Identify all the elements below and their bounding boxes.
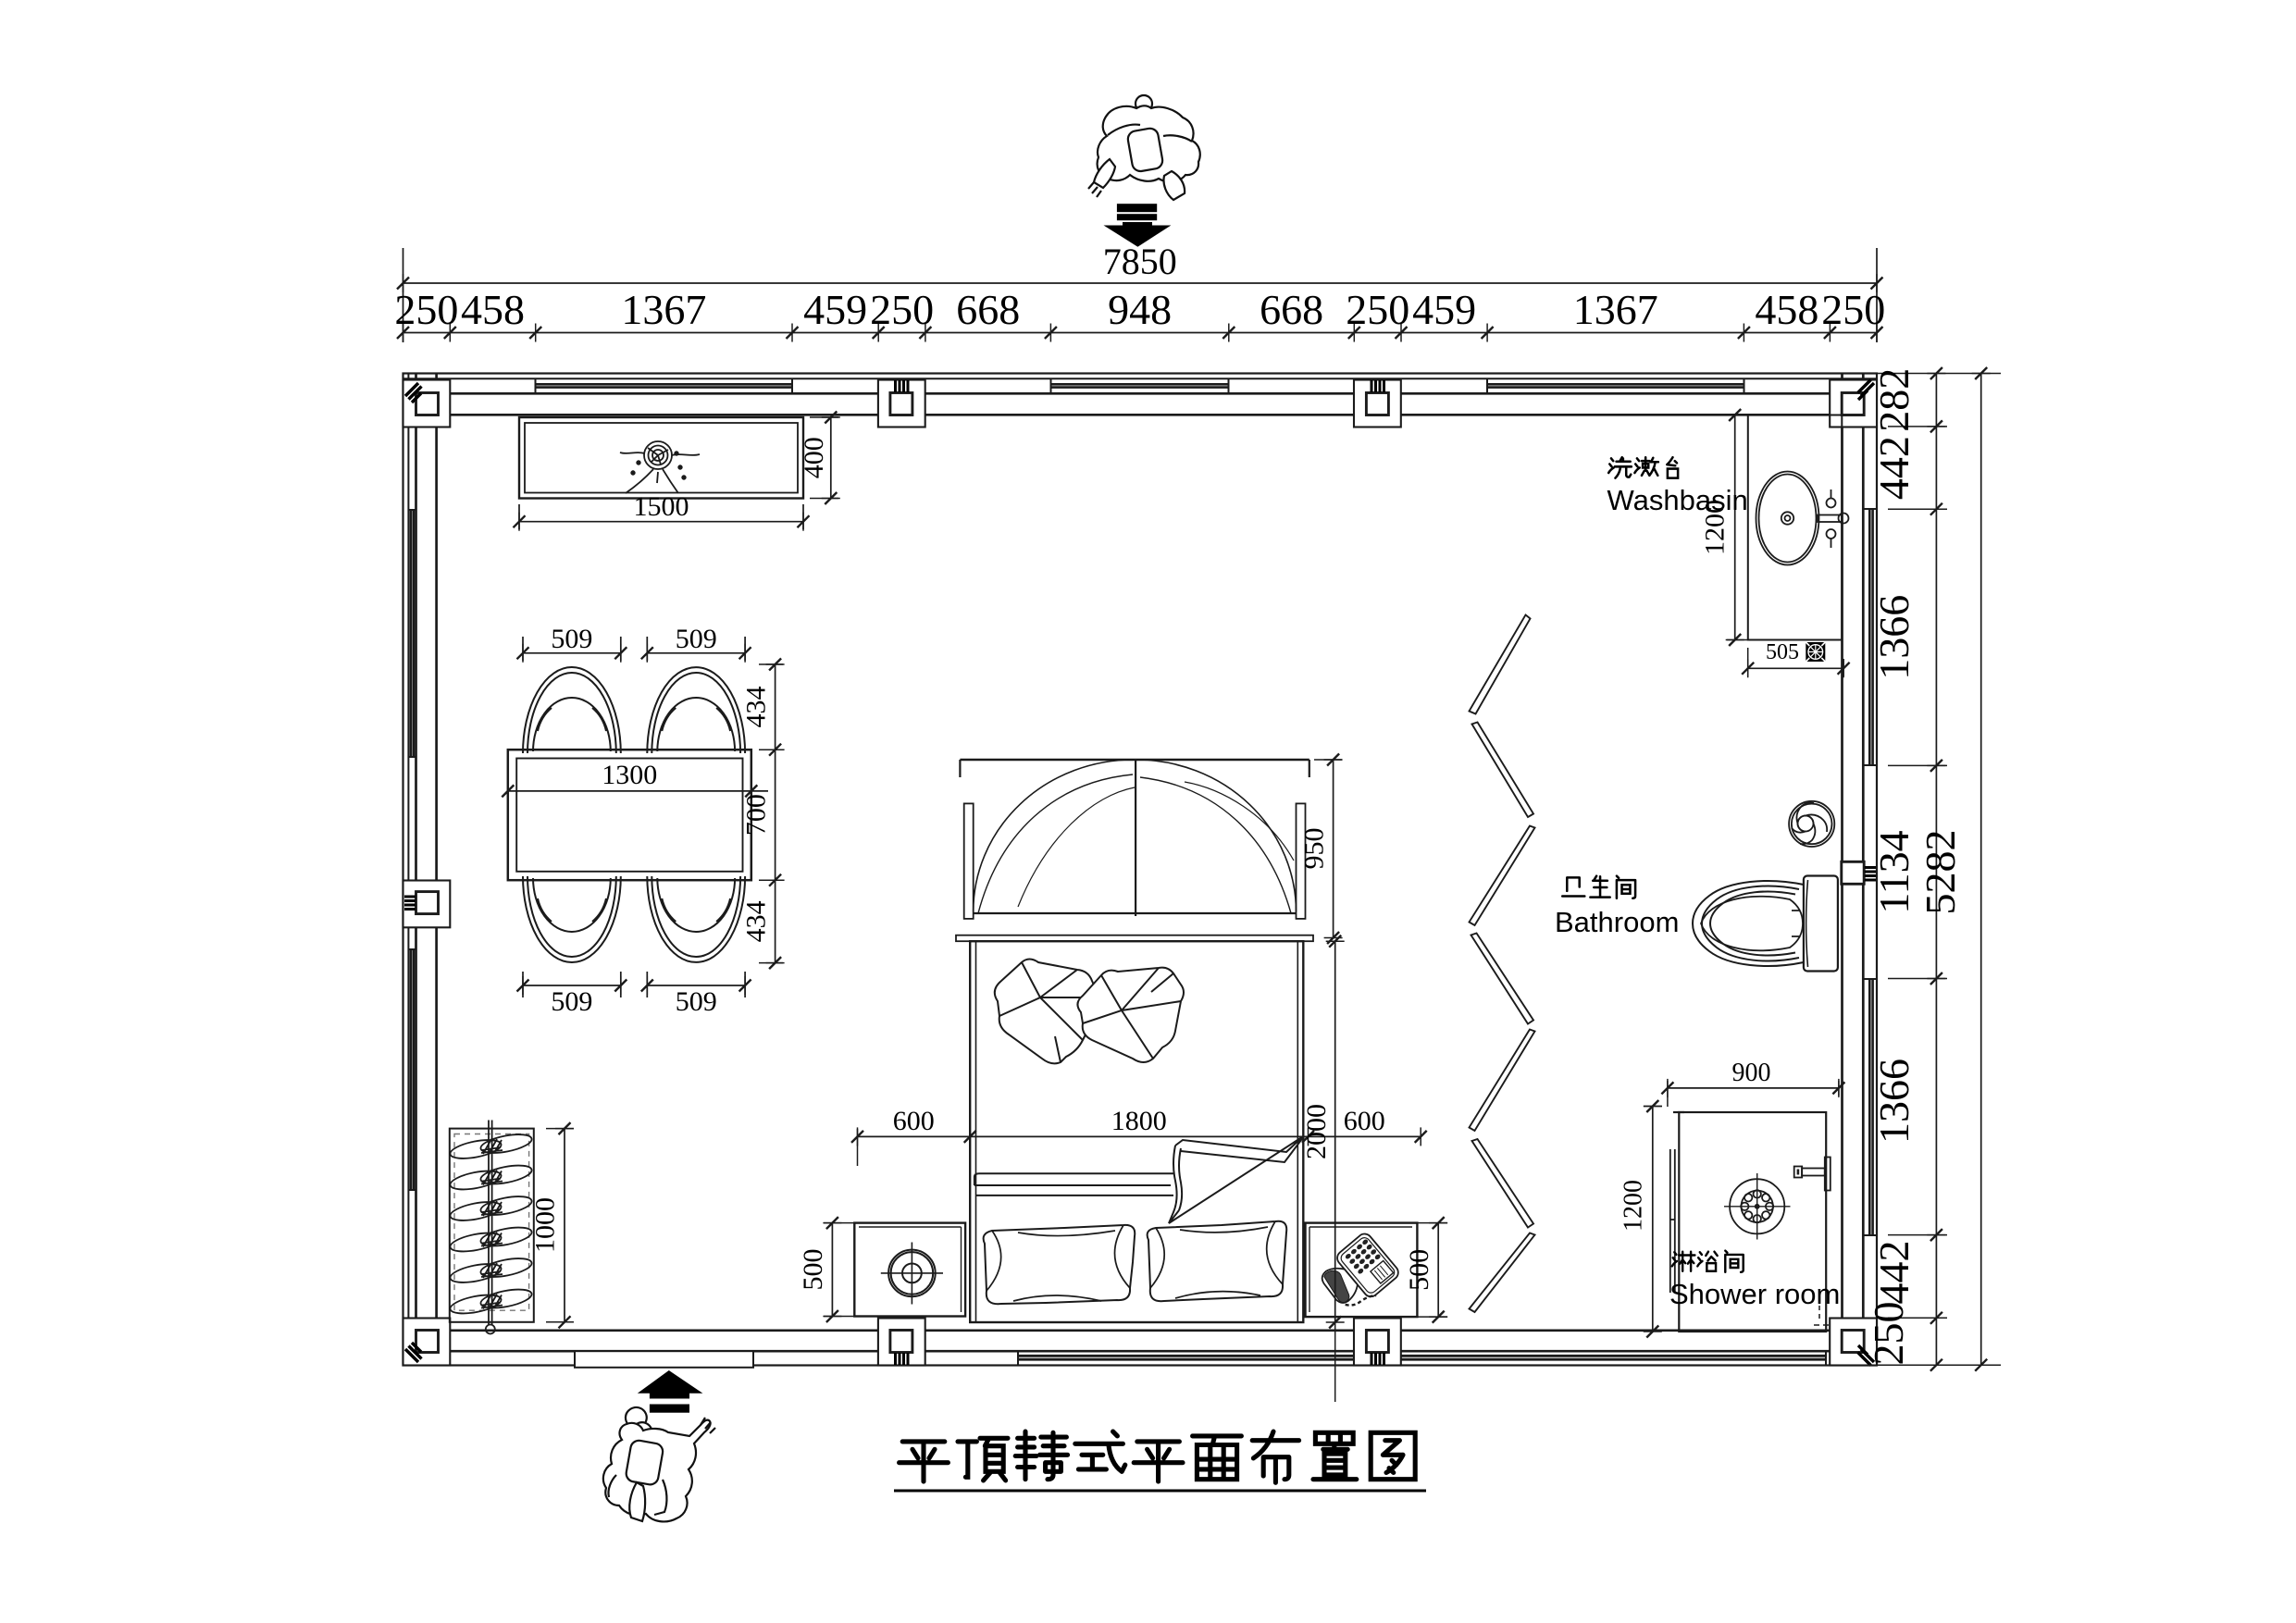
svg-text:Washbasin: Washbasin xyxy=(1607,484,1748,516)
svg-text:1200: 1200 xyxy=(1620,1180,1648,1232)
svg-text:509: 509 xyxy=(551,986,592,1017)
svg-text:1134: 1134 xyxy=(1870,830,1917,913)
svg-text:1367: 1367 xyxy=(621,286,706,333)
svg-text:600: 600 xyxy=(1344,1106,1385,1136)
svg-text:400: 400 xyxy=(799,437,829,478)
svg-text:250: 250 xyxy=(1346,286,1409,333)
svg-text:434: 434 xyxy=(741,687,772,728)
svg-text:509: 509 xyxy=(551,624,592,654)
svg-text:434: 434 xyxy=(741,900,772,942)
svg-text:950: 950 xyxy=(1299,828,1330,870)
svg-text:1367: 1367 xyxy=(1573,286,1658,333)
svg-text:5282: 5282 xyxy=(1917,830,1964,915)
svg-text:1366: 1366 xyxy=(1870,1059,1917,1144)
svg-text:1500: 1500 xyxy=(634,491,689,522)
svg-text:900: 900 xyxy=(1732,1059,1771,1087)
svg-text:500: 500 xyxy=(798,1249,828,1291)
svg-text:250: 250 xyxy=(394,286,458,333)
svg-text:442: 442 xyxy=(1870,436,1917,500)
svg-text:459: 459 xyxy=(803,286,867,333)
svg-text:458: 458 xyxy=(461,286,525,333)
svg-text:600: 600 xyxy=(893,1106,935,1136)
svg-text:1000: 1000 xyxy=(530,1197,561,1253)
svg-text:250: 250 xyxy=(870,286,934,333)
svg-text:509: 509 xyxy=(676,624,717,654)
svg-text:Shower room: Shower room xyxy=(1669,1278,1840,1310)
svg-text:948: 948 xyxy=(1108,286,1172,333)
svg-text:1800: 1800 xyxy=(1111,1106,1167,1136)
svg-text:1300: 1300 xyxy=(602,760,657,790)
svg-text:2000: 2000 xyxy=(1301,1104,1332,1159)
svg-text:1366: 1366 xyxy=(1870,595,1917,680)
svg-text:442: 442 xyxy=(1870,1241,1917,1305)
svg-text:459: 459 xyxy=(1412,286,1476,333)
svg-text:7850: 7850 xyxy=(1103,241,1177,282)
svg-text:505: 505 xyxy=(1766,640,1799,664)
svg-text:250: 250 xyxy=(1821,286,1885,333)
svg-text:Bathroom: Bathroom xyxy=(1555,906,1679,938)
svg-text:668: 668 xyxy=(1260,286,1323,333)
svg-text:668: 668 xyxy=(956,286,1020,333)
svg-text:458: 458 xyxy=(1755,286,1818,333)
svg-text:509: 509 xyxy=(676,986,717,1017)
svg-text:500: 500 xyxy=(1404,1249,1434,1291)
svg-text:282: 282 xyxy=(1870,368,1917,432)
svg-text:700: 700 xyxy=(741,794,772,836)
svg-text:250: 250 xyxy=(1865,1302,1912,1366)
